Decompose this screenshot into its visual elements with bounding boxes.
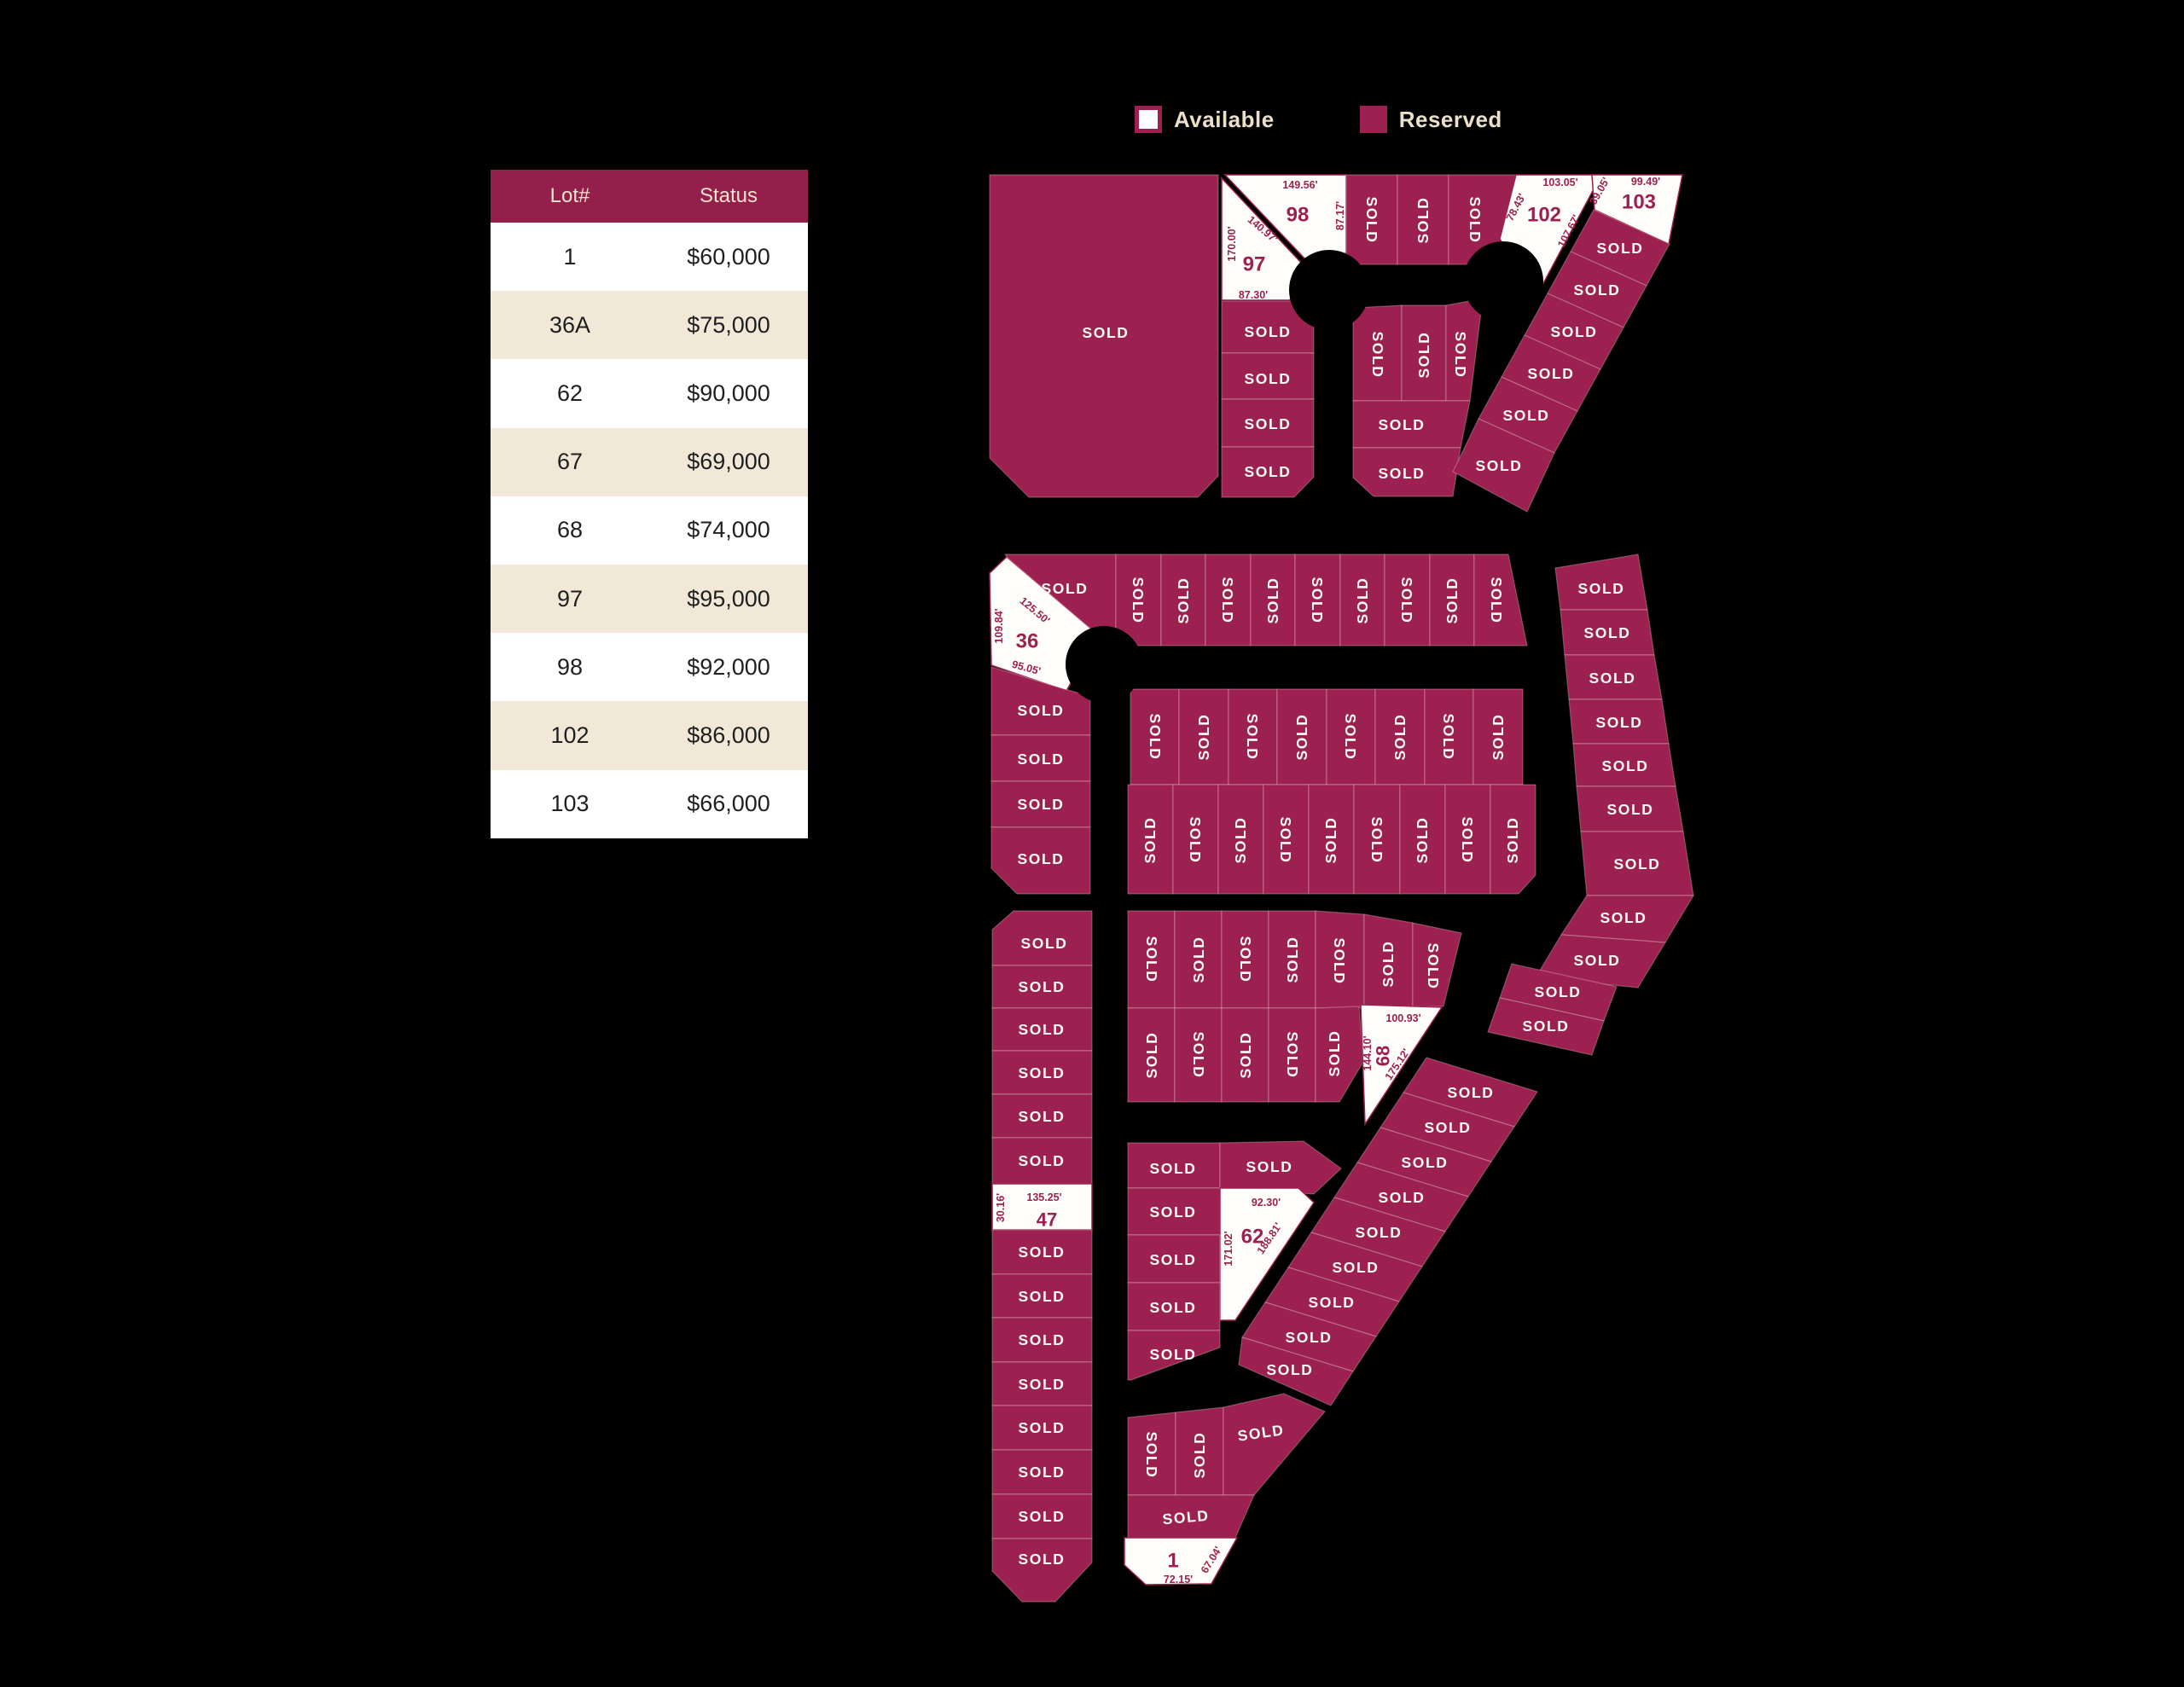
sold-label: SOLD <box>1018 1419 1065 1436</box>
sold-label: SOLD <box>1354 577 1371 623</box>
sold-label: SOLD <box>1378 465 1425 482</box>
sold-label: SOLD <box>1018 1288 1065 1305</box>
sold-label: SOLD <box>1244 713 1261 760</box>
sold-label: SOLD <box>1488 577 1505 623</box>
sold-label: SOLD <box>1459 816 1476 863</box>
sold-label: SOLD <box>1534 983 1581 1000</box>
sold-label: SOLD <box>1018 978 1065 995</box>
sold-label: SOLD <box>1573 952 1620 969</box>
lot-dimension-label: 135.25' <box>1026 1191 1061 1203</box>
sold-label: SOLD <box>1244 463 1291 480</box>
sold-label: SOLD <box>1322 816 1339 863</box>
sold-label: SOLD <box>1440 713 1457 760</box>
sold-label: SOLD <box>1332 1259 1379 1276</box>
lot-sold-parcel[interactable] <box>992 1539 1092 1602</box>
available-lot-number-label: 47 <box>1037 1209 1057 1231</box>
available-lot-number-label: 97 <box>1243 253 1266 276</box>
lot-dimension-label: 170.00' <box>1226 226 1238 261</box>
sold-label: SOLD <box>1504 816 1521 863</box>
sold-label: SOLD <box>1326 1029 1343 1076</box>
lot-map: SOLDSOLDSOLDSOLDSOLD9897SOLDSOLDSOLDSOLD… <box>0 0 2184 1687</box>
lot-dimension-label: 87.30' <box>1239 289 1268 301</box>
lot-dimension-label: 92.30' <box>1252 1197 1281 1209</box>
sold-label: SOLD <box>1149 1251 1196 1268</box>
lot-dimension-label: 87.17' <box>1334 201 1346 230</box>
sold-label: SOLD <box>1017 850 1064 867</box>
sold-label: SOLD <box>1589 670 1635 687</box>
sold-label: SOLD <box>1082 324 1129 341</box>
sold-label: SOLD <box>1130 577 1147 623</box>
sold-label: SOLD <box>1143 1031 1160 1078</box>
sold-label: SOLD <box>1573 281 1620 299</box>
sold-label: SOLD <box>1424 1119 1471 1136</box>
sold-label: SOLD <box>1237 936 1254 983</box>
sold-label: SOLD <box>1391 713 1409 760</box>
sold-label: SOLD <box>1331 937 1348 984</box>
lot-dimension-label: 99.49' <box>1631 176 1660 188</box>
sold-label: SOLD <box>1041 580 1088 597</box>
sold-label: SOLD <box>1285 1329 1332 1346</box>
lot-dimension-label: 103.05' <box>1542 177 1577 188</box>
culdesac-road <box>1289 250 1369 330</box>
sold-label: SOLD <box>1244 415 1291 432</box>
sold-label: SOLD <box>1308 1294 1355 1311</box>
sold-label: SOLD <box>1244 370 1291 387</box>
sold-label: SOLD <box>1401 1154 1448 1171</box>
sold-label: SOLD <box>1601 757 1648 774</box>
sold-label: SOLD <box>1018 1551 1065 1568</box>
sold-label: SOLD <box>1017 796 1064 813</box>
lot-dimension-label: 100.93' <box>1385 1012 1420 1024</box>
sold-label: SOLD <box>1018 1244 1065 1261</box>
sold-label: SOLD <box>1467 196 1484 243</box>
available-lot-number-label: 1 <box>1167 1550 1178 1573</box>
sold-label: SOLD <box>1149 1203 1196 1220</box>
sold-label: SOLD <box>1020 935 1067 952</box>
sold-label: SOLD <box>1018 1331 1065 1348</box>
sold-label: SOLD <box>1414 196 1432 243</box>
sold-label: SOLD <box>1219 577 1236 623</box>
sold-label: SOLD <box>1600 909 1647 926</box>
sold-label: SOLD <box>1018 1021 1065 1038</box>
sold-label: SOLD <box>1363 196 1380 243</box>
sold-label: SOLD <box>1190 1031 1207 1078</box>
sold-label: SOLD <box>1264 577 1281 623</box>
sold-label: SOLD <box>1378 416 1425 433</box>
sold-label: SOLD <box>1355 1224 1402 1241</box>
sold-label: SOLD <box>1175 577 1192 623</box>
sold-label: SOLD <box>1309 577 1326 623</box>
lot-dimension-label: 72.15' <box>1164 1574 1193 1586</box>
sold-label: SOLD <box>1149 1346 1196 1363</box>
sold-label: SOLD <box>1613 855 1660 872</box>
sold-label: SOLD <box>1577 580 1624 597</box>
sold-label: SOLD <box>1342 713 1359 760</box>
sold-label: SOLD <box>1018 1152 1065 1169</box>
sold-label: SOLD <box>1018 1108 1065 1125</box>
sold-label: SOLD <box>1187 816 1204 863</box>
sold-label: SOLD <box>1266 1361 1313 1378</box>
sold-label: SOLD <box>1606 801 1653 818</box>
sold-label: SOLD <box>1378 1189 1425 1206</box>
sold-label: SOLD <box>1018 1464 1065 1481</box>
sold-label: SOLD <box>1595 714 1642 731</box>
sold-label: SOLD <box>1237 1031 1254 1078</box>
sold-label: SOLD <box>1143 936 1160 983</box>
available-lot-number-label: 103 <box>1622 191 1656 214</box>
sold-label: SOLD <box>1415 331 1432 378</box>
sold-label: SOLD <box>1380 940 1397 987</box>
lot-dimension-label: 109.84' <box>993 608 1005 643</box>
lot-dimension-label: 171.02' <box>1223 1231 1234 1266</box>
sold-label: SOLD <box>1195 713 1212 760</box>
sold-label: SOLD <box>1369 331 1386 378</box>
sold-label: SOLD <box>1018 1376 1065 1393</box>
sold-label: SOLD <box>1232 816 1249 863</box>
lot-dimension-label: 30.16' <box>995 1193 1007 1222</box>
sold-label: SOLD <box>1398 577 1415 623</box>
culdesac-road <box>1463 241 1543 322</box>
sold-label: SOLD <box>1447 1084 1494 1101</box>
culdesac-road <box>1066 626 1142 703</box>
sold-label: SOLD <box>1425 942 1442 989</box>
sold-label: SOLD <box>1490 713 1507 760</box>
sold-label: SOLD <box>1527 365 1574 382</box>
sold-label: SOLD <box>1277 816 1294 863</box>
sold-label: SOLD <box>1502 407 1549 424</box>
sold-label: SOLD <box>1475 457 1522 474</box>
sold-label: SOLD <box>1018 1508 1065 1525</box>
sold-label: SOLD <box>1293 713 1310 760</box>
sold-label: SOLD <box>1191 1431 1208 1478</box>
sold-label: SOLD <box>1550 323 1597 340</box>
available-lot-number-label: 102 <box>1527 204 1561 227</box>
sold-label: SOLD <box>1596 240 1643 257</box>
sold-label: SOLD <box>1244 323 1291 340</box>
sold-label: SOLD <box>1368 816 1385 863</box>
sold-label: SOLD <box>1017 702 1064 719</box>
available-lot-number-label: 98 <box>1287 204 1310 227</box>
sold-label: SOLD <box>1147 713 1164 760</box>
sold-label: SOLD <box>1583 624 1630 641</box>
sold-label: SOLD <box>1522 1017 1569 1035</box>
sold-label: SOLD <box>1190 936 1207 983</box>
sold-label: SOLD <box>1149 1160 1196 1177</box>
available-lot-number-label: 36 <box>1016 630 1039 653</box>
lot-dimension-label: 149.56' <box>1282 179 1317 191</box>
sold-label: SOLD <box>1414 816 1431 863</box>
sold-label: SOLD <box>1452 331 1469 378</box>
sold-label: SOLD <box>1141 816 1159 863</box>
sold-label: SOLD <box>1284 1031 1301 1078</box>
lot-dimension-label: 144.10' <box>1362 1035 1374 1070</box>
sold-label: SOLD <box>1284 936 1301 983</box>
sold-label: SOLD <box>1017 751 1064 768</box>
sold-label: SOLD <box>1246 1158 1292 1175</box>
sold-label: SOLD <box>1018 1064 1065 1081</box>
sold-label: SOLD <box>1149 1299 1196 1316</box>
sold-label: SOLD <box>1143 1431 1160 1478</box>
sold-label: SOLD <box>1443 577 1461 623</box>
